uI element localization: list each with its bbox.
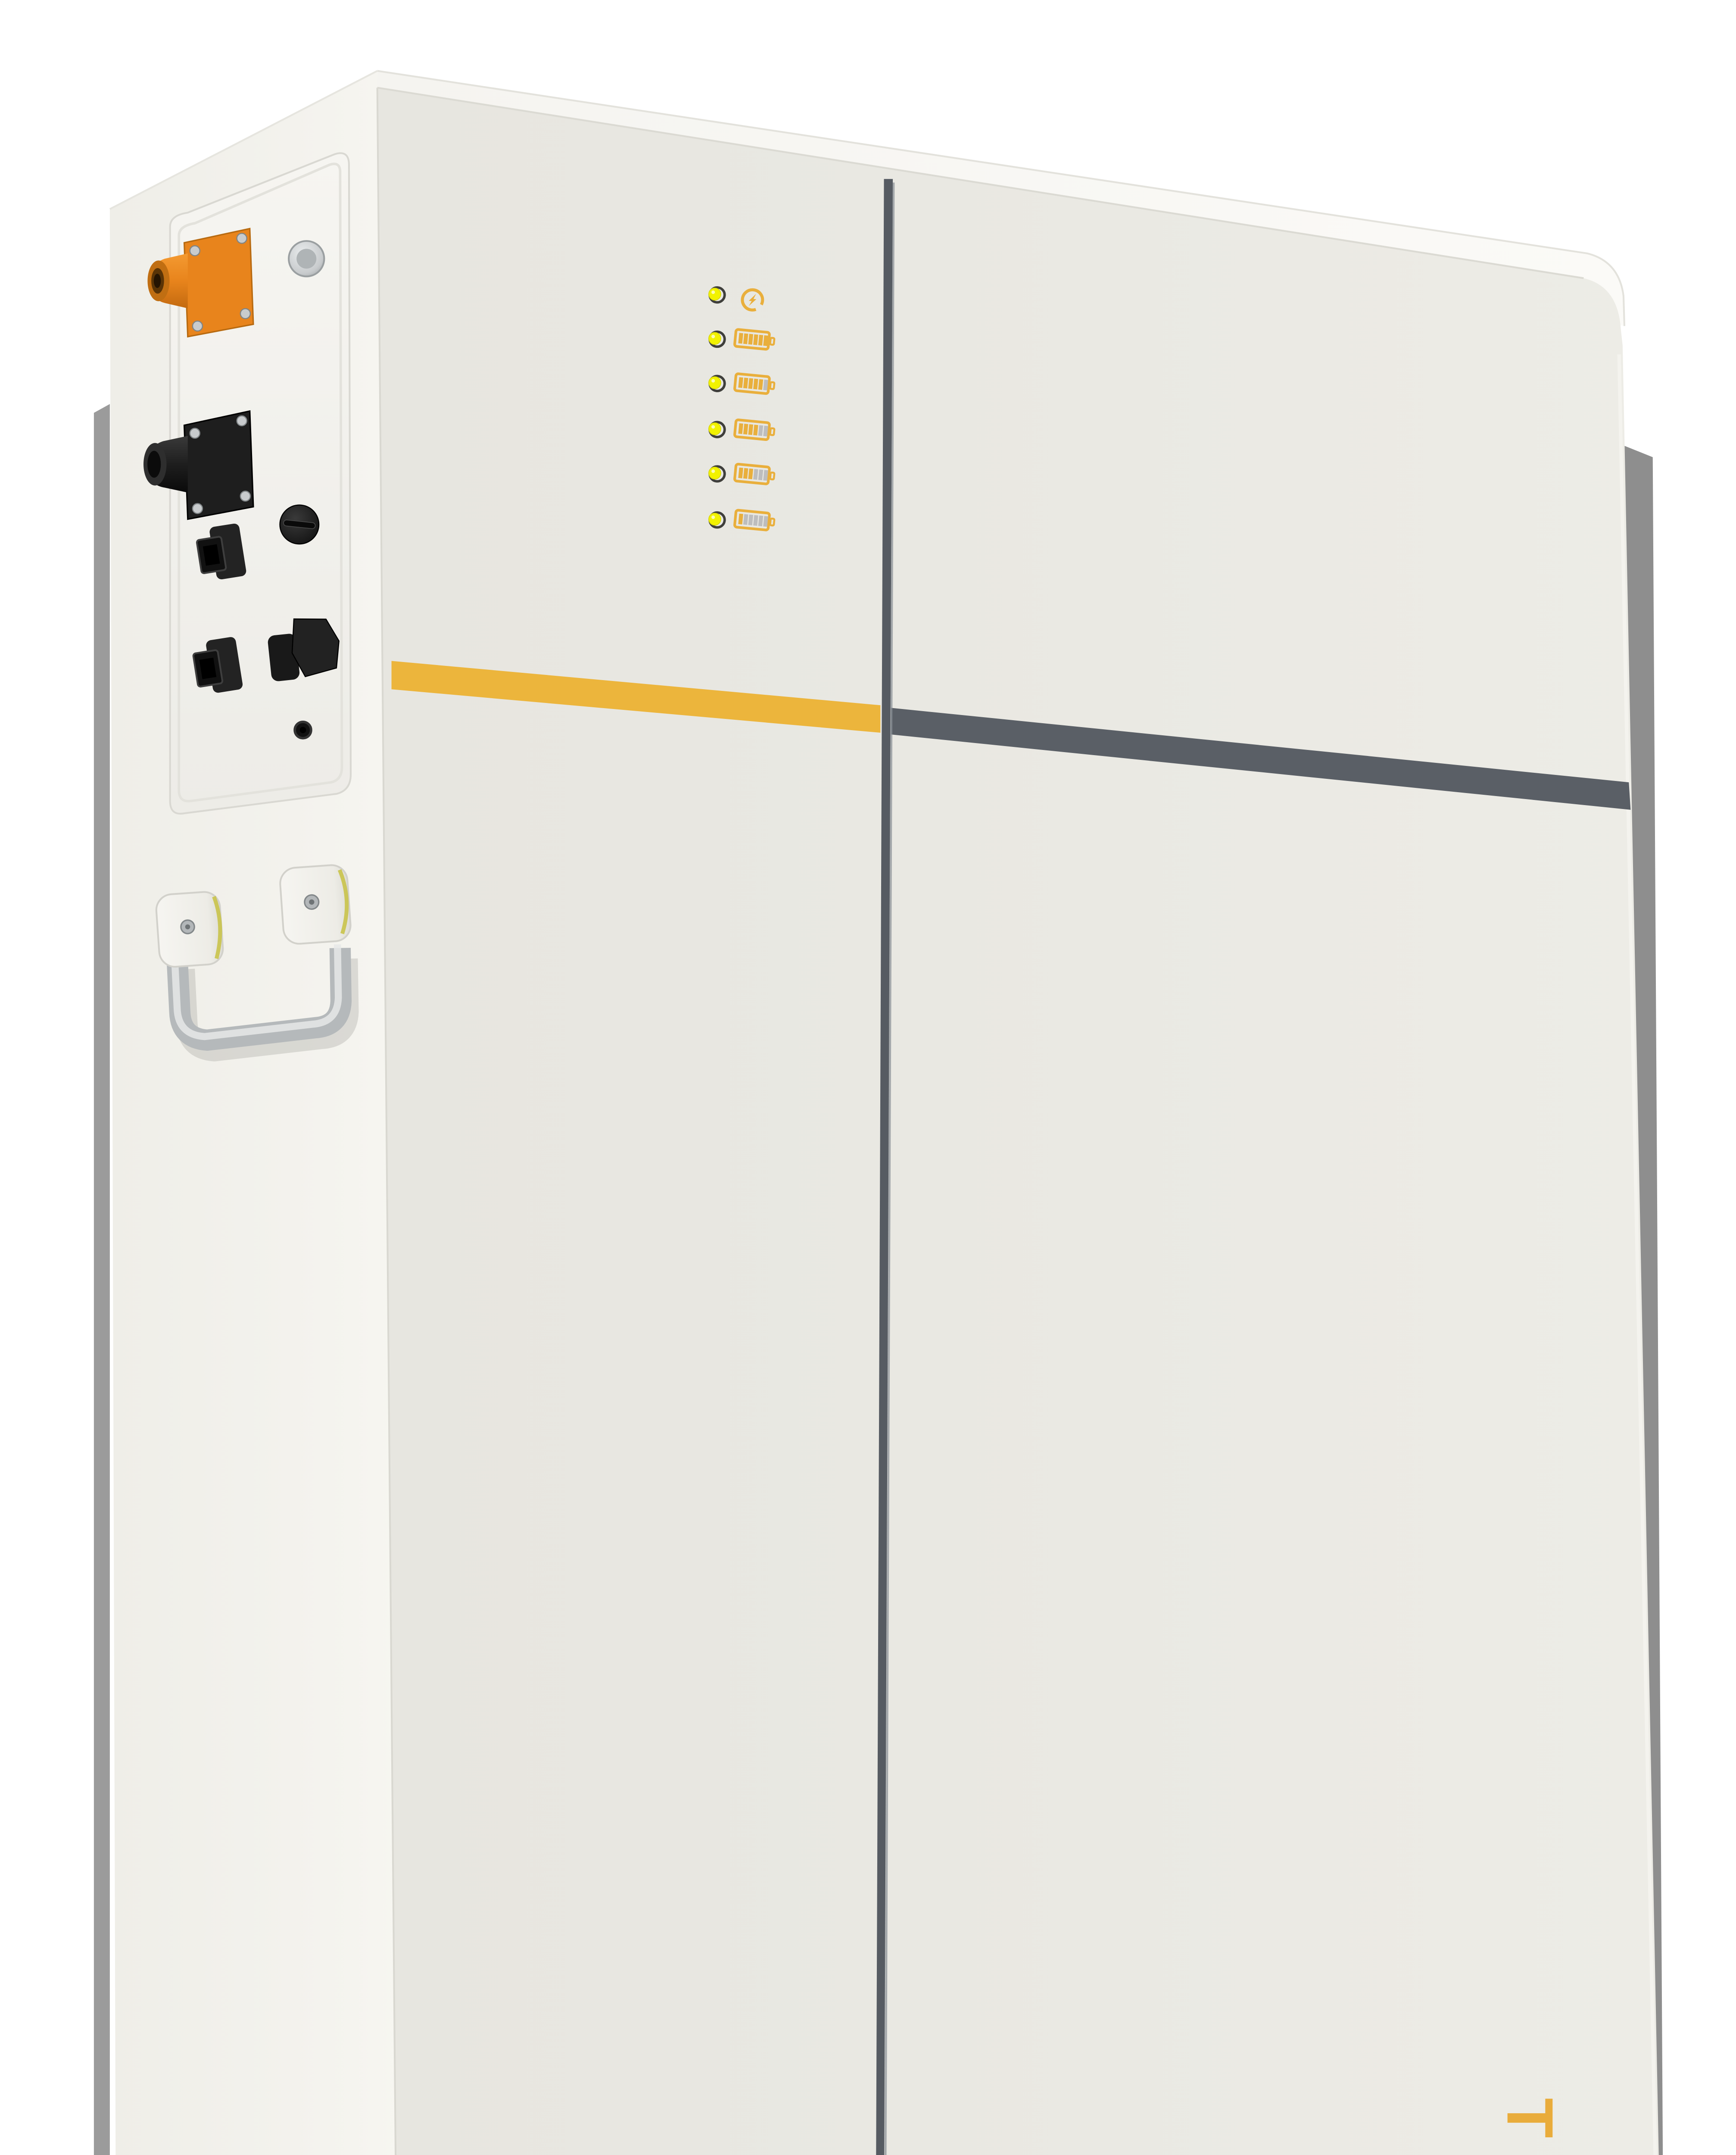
vent-hole-center — [300, 727, 306, 733]
handle-mount-left — [155, 891, 224, 968]
product-render-canvas: T RIPLE POWER — [0, 0, 1736, 2155]
battery-unit-product-image: T RIPLE POWER — [0, 0, 1736, 2155]
connector-panel — [143, 153, 351, 814]
handle-mount-right — [279, 864, 352, 945]
back-left-edge — [94, 404, 110, 2155]
front-face — [377, 88, 1667, 2155]
brand-title-t: T — [1493, 2098, 1567, 2143]
brand-title: T RIPLE — [1493, 2098, 1567, 2155]
metal-button-center — [296, 249, 316, 269]
